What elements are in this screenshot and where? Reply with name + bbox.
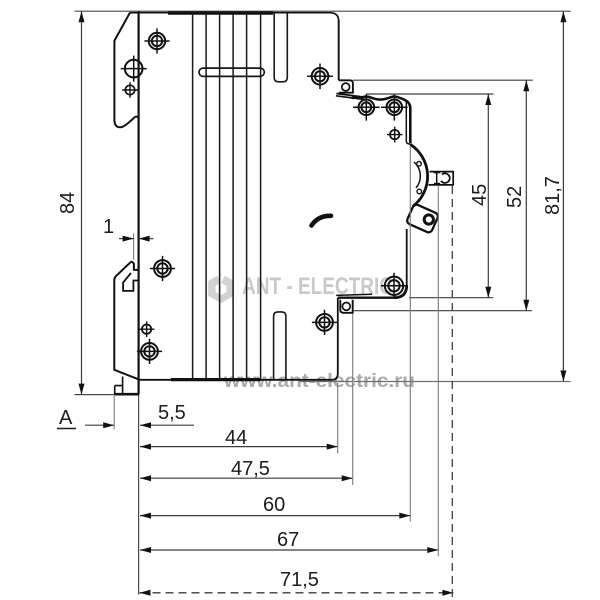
svg-text:1: 1 — [103, 216, 114, 238]
svg-text:45: 45 — [469, 184, 491, 206]
svg-text:71,5: 71,5 — [280, 569, 319, 591]
svg-text:A: A — [59, 407, 73, 429]
svg-text:81,7: 81,7 — [542, 176, 564, 215]
svg-text:52: 52 — [504, 186, 526, 208]
svg-text:60: 60 — [263, 494, 285, 516]
svg-text:44: 44 — [225, 427, 247, 449]
svg-text:5,5: 5,5 — [158, 402, 186, 424]
svg-text:47,5: 47,5 — [231, 458, 270, 480]
svg-text:67: 67 — [277, 529, 299, 551]
